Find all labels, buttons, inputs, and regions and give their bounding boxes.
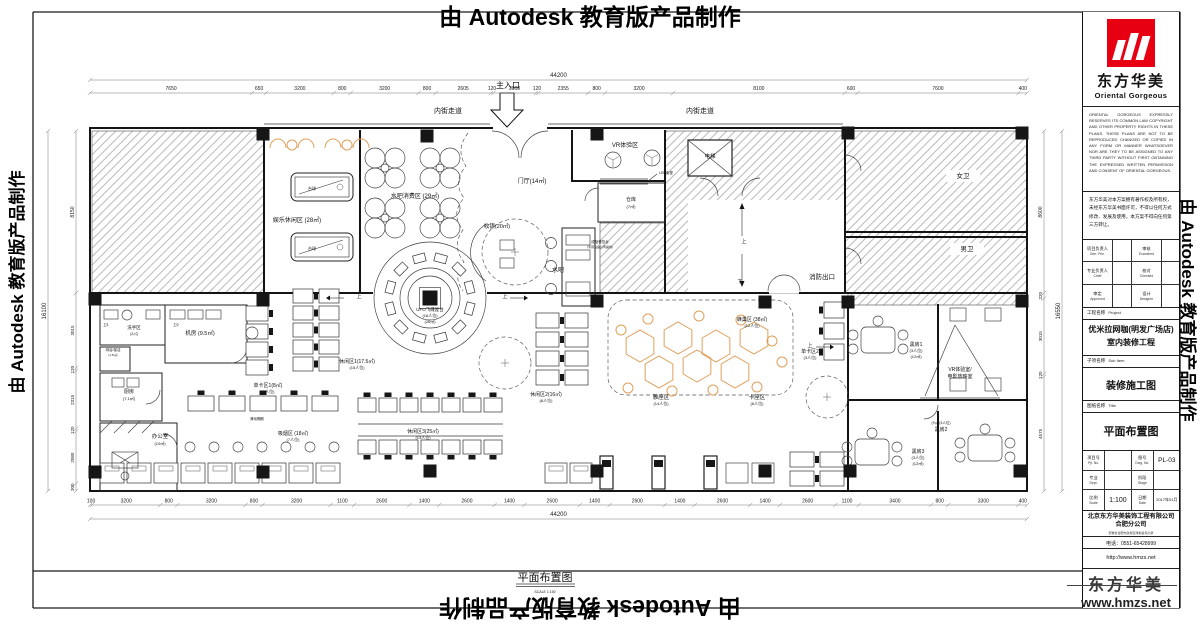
dim-value: 800 xyxy=(423,86,432,92)
desk xyxy=(463,398,481,412)
watermark: 东方华美 www.hmzs.net xyxy=(1083,571,1179,610)
dim-value: 400 xyxy=(1019,86,1028,92)
dim-value: 2000 xyxy=(509,86,520,92)
hatched-area xyxy=(848,293,1027,305)
room-table xyxy=(968,435,1002,461)
dim-value: 1400 xyxy=(760,499,771,505)
plan-label: (10㎡) xyxy=(154,440,166,446)
plan-label: (8人位) xyxy=(540,397,554,403)
title-block: 东方华美 Oriental Gorgeous ORIENTAL GORGEOUS… xyxy=(1082,12,1180,608)
ufo-seat xyxy=(413,253,427,264)
plan-label: (3人位) xyxy=(910,347,924,353)
hex-pod xyxy=(664,322,692,354)
hex-chair xyxy=(708,385,718,395)
plan-label: (7.1㎡) xyxy=(123,395,136,401)
awning-icon xyxy=(298,139,314,148)
dim-value: 3200 xyxy=(294,86,305,92)
plan-label: UFO飞碟屋台 xyxy=(416,306,444,313)
door-swing xyxy=(924,405,938,419)
flower-table xyxy=(381,164,389,172)
desk xyxy=(790,471,814,486)
column xyxy=(1014,465,1027,478)
dim-value: 120 xyxy=(70,426,75,434)
dim-value: 8150 xyxy=(70,206,76,217)
dim-value: 2605 xyxy=(458,86,469,92)
fixture xyxy=(146,310,160,319)
plan-label: (7㎡) xyxy=(627,203,637,209)
project-name: 优米拉网咖(明发广场店) 室内装修工程 xyxy=(1083,320,1179,356)
room-table xyxy=(855,439,889,465)
desk xyxy=(824,323,844,339)
chair-mark xyxy=(314,361,318,368)
dim-value: 2315 xyxy=(70,394,75,405)
chair-mark xyxy=(560,374,564,381)
chair-mark xyxy=(427,393,434,398)
plan-label: 单卡区1(8㎡) xyxy=(254,382,283,389)
dim-value: 2355 xyxy=(558,86,569,92)
column xyxy=(89,293,102,306)
plan-label: 办公室 xyxy=(152,432,169,440)
chair-mark xyxy=(291,391,298,396)
chair-mark xyxy=(819,307,823,314)
fixture xyxy=(950,308,966,321)
dim-value: 800 xyxy=(936,499,945,505)
fixture-circle xyxy=(122,310,132,320)
desk xyxy=(824,302,844,318)
dim-value: 3300 xyxy=(978,499,989,505)
meta-value xyxy=(1154,471,1179,491)
column xyxy=(257,466,270,479)
plan-label: (6人位) xyxy=(751,400,765,406)
fixture xyxy=(170,310,185,319)
role-value xyxy=(1162,262,1179,284)
dim-value: 120 xyxy=(488,86,497,92)
step-arrowhead xyxy=(524,296,528,301)
copyright-notice-cn: 东方华美对本方案拥有著作权及所有权，未经东方华美书面许可，不得以任何方式修改、发… xyxy=(1083,192,1179,240)
chair-mark xyxy=(364,393,371,398)
desk xyxy=(293,306,313,320)
chair-mark xyxy=(269,328,273,335)
chair-mark xyxy=(406,393,413,398)
desk xyxy=(463,440,481,454)
desk xyxy=(319,323,339,337)
role-label: 设计Designer xyxy=(1132,285,1162,307)
dim-value: 8600 xyxy=(1038,206,1044,217)
desk xyxy=(565,313,588,328)
chair-mark xyxy=(269,346,273,353)
chair xyxy=(892,456,902,466)
plan-label: 卡座区 xyxy=(749,393,766,401)
meta-value xyxy=(1105,451,1132,471)
ufo-seat xyxy=(434,332,448,343)
desk xyxy=(319,340,339,354)
role-value xyxy=(1113,240,1132,262)
desk xyxy=(312,396,338,411)
chair-mark xyxy=(229,391,236,396)
chair-mark xyxy=(469,455,476,460)
chair xyxy=(898,330,908,340)
door-swing xyxy=(521,131,548,158)
ufo-seat xyxy=(464,281,475,295)
sheet-title: 平面布置图 xyxy=(1083,413,1179,439)
phone-number: 电话：0551-65428999 xyxy=(1083,537,1179,549)
role-label: 校对Checked xyxy=(1132,262,1162,284)
desk xyxy=(442,398,460,412)
plan-label: (16人位) xyxy=(422,312,438,318)
plan-label: 台球 xyxy=(308,245,316,251)
awning-icon xyxy=(325,139,341,148)
desk xyxy=(565,332,588,347)
plan-label: 黑房1 xyxy=(910,341,923,348)
ufo-seat xyxy=(464,302,475,316)
company-address: 安徽省合肥市政务区绿地蓝海大厦 xyxy=(1083,531,1179,535)
plan-label: 滑动隔断 xyxy=(250,416,264,421)
dim-value: 7600 xyxy=(932,86,943,92)
scale-value: 1:100 xyxy=(1105,490,1132,510)
dim-value: 220 xyxy=(1038,291,1043,299)
plan-label: 上 xyxy=(807,342,812,349)
plan-label: (1.8㎡) xyxy=(108,352,117,357)
desk xyxy=(421,398,439,412)
desk xyxy=(319,357,339,371)
desk xyxy=(421,440,439,454)
chair-mark xyxy=(819,328,823,335)
fixture xyxy=(985,378,1001,391)
sheet-title-section: 图纸名称Title 平面布置图 xyxy=(1083,401,1179,451)
meta-label: 日期Date xyxy=(1132,490,1154,510)
project-label: 工程名称Project xyxy=(1083,308,1179,320)
thin-line xyxy=(925,325,955,396)
column xyxy=(1016,127,1029,140)
column xyxy=(591,128,604,141)
watermark-line xyxy=(1067,585,1177,586)
floor-plan-drawing: 内街走道内街走道主入口娱乐休闲区 (28㎡)台球台球水吧消费区 (29㎡)门厅(… xyxy=(0,0,1200,621)
dim-value: 2600 xyxy=(547,499,558,505)
flower-table xyxy=(436,214,444,222)
plan-label: 黑房3 xyxy=(912,448,925,455)
room-table xyxy=(861,327,895,353)
subitem-section: 子项名称Sub Item 装修施工图 xyxy=(1083,356,1179,401)
plan-label: (2㎡) xyxy=(130,331,138,336)
hex-pod xyxy=(721,356,749,388)
desk xyxy=(484,440,502,454)
desk xyxy=(246,342,268,357)
desk xyxy=(790,452,814,467)
chair-mark xyxy=(406,455,413,460)
chair-mark xyxy=(490,393,497,398)
desk xyxy=(565,370,588,385)
billiard-balls xyxy=(337,244,343,250)
desk xyxy=(536,313,559,328)
watermark-url: www.hmzs.net xyxy=(1073,595,1179,610)
dim-value: 3015 xyxy=(1038,331,1043,342)
dim-value: 2600 xyxy=(717,499,728,505)
chair xyxy=(867,428,877,438)
plan-label: (13人位) xyxy=(415,434,431,440)
plan-label: 收银(20㎡) xyxy=(484,222,510,230)
hex-chair xyxy=(767,336,777,346)
chair xyxy=(281,442,291,452)
meta-label: 阶段Stage xyxy=(1132,471,1154,491)
dim-value: 2600 xyxy=(802,499,813,505)
dim-value: 7650 xyxy=(166,86,177,92)
chair-mark xyxy=(560,336,564,343)
desk xyxy=(219,396,245,411)
chair-mark xyxy=(198,391,205,396)
plan-label: LED电视 xyxy=(659,170,673,175)
plan-label: 门厅(14㎡) xyxy=(518,177,547,185)
fixture xyxy=(188,310,203,319)
autodesk-banner-right: 由 Autodesk 教育版产品制作 xyxy=(1178,160,1200,460)
fixture xyxy=(566,235,590,245)
desk xyxy=(358,440,376,454)
chair-mark xyxy=(385,455,392,460)
signature-table: 项目负责人Gen. Prin. 审核Examined 专业负责人Chief 校对… xyxy=(1083,240,1179,308)
desk xyxy=(400,440,418,454)
plan-label: 电梯 xyxy=(704,152,716,160)
date-value: 2017年01月 xyxy=(1154,490,1179,510)
desk xyxy=(188,396,214,411)
meta-value xyxy=(1105,471,1132,491)
booth-seat xyxy=(654,460,663,467)
chair xyxy=(209,442,219,452)
hex-pod xyxy=(702,330,730,362)
plan-label: (15人位) xyxy=(349,364,365,370)
desk xyxy=(820,471,844,486)
thin-line xyxy=(955,325,998,396)
dim-value: 3200 xyxy=(633,86,644,92)
chair xyxy=(1005,438,1015,448)
role-value xyxy=(1162,285,1179,307)
chair-mark xyxy=(560,317,564,324)
column xyxy=(759,465,772,478)
plan-label: 吸烟区 (18㎡) xyxy=(278,430,309,437)
desk xyxy=(536,332,559,347)
fixture xyxy=(500,240,514,250)
ufo-seat xyxy=(434,253,448,264)
column xyxy=(257,128,270,141)
dim-value: 1100 xyxy=(337,499,348,505)
dim-value: 3200 xyxy=(206,499,217,505)
chair-mark xyxy=(322,391,329,396)
meta-label: 项目号Pjt. No. xyxy=(1083,451,1105,471)
chair-mark xyxy=(427,455,434,460)
flower-table xyxy=(436,164,444,172)
column xyxy=(759,296,772,309)
dim-value: 800 xyxy=(250,499,259,505)
desk xyxy=(246,360,268,375)
fixture xyxy=(206,310,221,319)
chair-mark xyxy=(448,455,455,460)
watermark-company: 东方华美 xyxy=(1073,571,1179,595)
hex-pod xyxy=(645,356,673,388)
desk xyxy=(246,306,268,321)
hatched-area xyxy=(600,223,665,293)
door-swing xyxy=(471,224,486,281)
plan-label: 单卡区2 xyxy=(801,348,819,355)
meta-label: 专业Dept. xyxy=(1083,471,1105,491)
hex-pod xyxy=(626,330,654,362)
column xyxy=(257,294,270,307)
chair xyxy=(546,238,557,249)
ufo-seat xyxy=(452,262,466,276)
role-label: 项目负责人Gen. Prin. xyxy=(1083,240,1113,262)
dim-value: 100 xyxy=(87,499,96,505)
chair-mark xyxy=(560,355,564,362)
plan-label: (9㎡)(3人位) xyxy=(931,420,950,425)
hex-pod xyxy=(683,350,711,382)
dim-value: 4575 xyxy=(1038,428,1043,439)
chair-mark xyxy=(815,475,819,482)
desk xyxy=(379,398,397,412)
plan-label: (12㎡) xyxy=(912,460,924,466)
plan-label: 成品餐饮台 xyxy=(591,239,609,244)
dim-value: 3400 xyxy=(889,499,900,505)
dim-value: 3200 xyxy=(291,499,302,505)
dim-value: 44200 xyxy=(550,73,567,79)
dim-value: 1100 xyxy=(842,499,853,505)
hex-chair xyxy=(616,325,626,335)
dim-value: 120 xyxy=(533,86,542,92)
awning-circle-icon xyxy=(287,140,297,150)
chair-mark xyxy=(269,310,273,317)
chair xyxy=(955,452,965,462)
fixture xyxy=(112,378,124,387)
chair xyxy=(1005,452,1015,462)
dim-value: 650 xyxy=(255,86,264,92)
desk xyxy=(824,344,844,360)
chair-mark xyxy=(314,293,318,300)
chair-mark xyxy=(385,393,392,398)
column xyxy=(591,465,604,478)
plan-label: 雅座区 xyxy=(653,393,670,401)
plan-label: 男卫 xyxy=(961,245,975,253)
role-value xyxy=(1113,262,1132,284)
plan-label: 电影放映室 xyxy=(947,373,972,380)
flower-table xyxy=(381,214,389,222)
plan-label: VR体验区 xyxy=(612,141,638,149)
plan-label: 水吧 xyxy=(552,266,564,274)
plan-label: (3人位) xyxy=(804,354,818,360)
dim-value: 1400 xyxy=(674,499,685,505)
role-value xyxy=(1162,240,1179,262)
dim-value: 1400 xyxy=(589,499,600,505)
hex-chair xyxy=(643,314,653,324)
dim-value: 300 xyxy=(70,483,75,491)
plan-label: 休闲区1(17.5㎡) xyxy=(339,358,375,365)
chair xyxy=(955,438,965,448)
column xyxy=(1016,295,1029,308)
chair-mark xyxy=(314,327,318,334)
logo-mark-icon xyxy=(1107,19,1155,67)
plan-label: (7人位) xyxy=(287,436,301,442)
cue-line xyxy=(299,180,343,194)
desk xyxy=(358,398,376,412)
desk xyxy=(565,351,588,366)
chair xyxy=(329,442,339,452)
chair xyxy=(185,442,195,452)
logo-company-name-en: Oriental Gorgeous xyxy=(1083,91,1179,100)
role-label: 专业负责人Chief xyxy=(1083,262,1113,284)
dim-value: 600 xyxy=(847,86,856,92)
desk xyxy=(536,370,559,385)
dim-value: 400 xyxy=(1019,499,1028,505)
desk xyxy=(319,289,339,303)
drawing-sheet: 内街走道内街走道主入口娱乐休闲区 (28㎡)台球台球水吧消费区 (29㎡)门厅(… xyxy=(0,0,1200,621)
dim-value: 1400 xyxy=(504,499,515,505)
autodesk-banner-bottom: 由 Autodesk 教育版产品制作 xyxy=(0,593,1180,627)
plan-label: 休闲区3(25㎡) xyxy=(407,428,439,435)
dim-value: 2080 xyxy=(70,452,75,463)
dim-value: 1400 xyxy=(419,499,430,505)
door-swing xyxy=(492,131,519,158)
desk xyxy=(400,398,418,412)
chair xyxy=(892,442,902,452)
chair xyxy=(233,442,243,452)
plan-label: 洗手区 xyxy=(127,324,141,331)
vr-chair-blade xyxy=(646,155,652,159)
dim-value: 3200 xyxy=(121,499,132,505)
dim-value: 44200 xyxy=(550,512,567,518)
column xyxy=(424,465,437,478)
chair-mark xyxy=(314,344,318,351)
chair-mark xyxy=(490,455,497,460)
logo-company-name: 东方华美 xyxy=(1083,70,1179,91)
desk xyxy=(281,396,307,411)
hex-chair xyxy=(752,382,762,392)
column xyxy=(421,130,434,143)
billiard-balls xyxy=(337,184,343,190)
fixture xyxy=(985,308,1001,321)
desk xyxy=(250,396,276,411)
plan-label: 娱乐休闲区 (28㎡) xyxy=(273,216,321,224)
plan-label: 上 xyxy=(741,238,746,245)
plan-label: (14人位) xyxy=(653,400,669,406)
dim-value: 2600 xyxy=(632,499,643,505)
website-url: http://www.hmzs.net xyxy=(1083,549,1179,569)
meta-label: 图号Dwg. No. xyxy=(1132,451,1154,471)
plan-label: 卫2 xyxy=(173,323,178,327)
door-swing xyxy=(231,347,247,363)
plan-label: 蜂巢区 (38㎡) xyxy=(737,316,768,323)
dim-value: 120 xyxy=(1038,371,1043,379)
dim-value: 120 xyxy=(70,365,75,373)
chair xyxy=(305,442,315,452)
chair-mark xyxy=(364,455,371,460)
desk xyxy=(293,357,313,371)
column xyxy=(591,295,604,308)
plan-label: 平面布置图 xyxy=(518,571,573,584)
ufo-seat xyxy=(385,281,396,295)
plan-label: (26㎡) xyxy=(424,318,436,324)
drawing-number: PL-03 xyxy=(1154,451,1179,471)
fixture xyxy=(566,250,590,260)
chair-mark xyxy=(314,310,318,317)
fixture xyxy=(104,310,118,319)
desk xyxy=(536,351,559,366)
chair-mark xyxy=(448,393,455,398)
plan-label: 厨房 xyxy=(124,388,134,395)
plan-label: 上 xyxy=(356,293,361,300)
plan-label: (12㎡) xyxy=(910,353,922,359)
plan-label: 内街走道 xyxy=(434,106,462,115)
ufo-seat xyxy=(452,320,466,334)
dim-value: 800 xyxy=(592,86,601,92)
plan-label: 卫1 xyxy=(103,323,108,327)
column xyxy=(423,291,438,306)
plan-label: 休闲区2(16㎡) xyxy=(530,391,562,398)
vr-chair-blade xyxy=(652,155,658,159)
